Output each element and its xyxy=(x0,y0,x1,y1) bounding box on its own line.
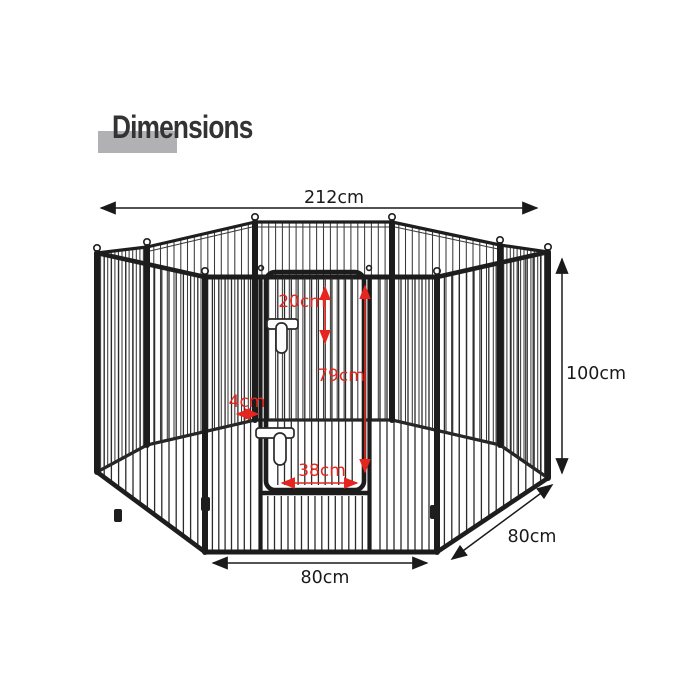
page-canvas: Dimensions xyxy=(0,0,700,700)
dim-overall-width: 212cm xyxy=(101,188,537,208)
panel-connector-far-left xyxy=(114,509,122,522)
dimension-label-door-gap: 4cm xyxy=(229,392,266,412)
dim-front-panel-width: 80cm xyxy=(213,563,427,588)
panel-connector-left xyxy=(201,497,210,511)
dimension-label-panel-height: 100cm xyxy=(566,364,626,384)
floor-frame xyxy=(97,420,548,552)
fence-panel-front-left xyxy=(97,253,205,552)
dim-door-gap: 4cm xyxy=(229,392,266,414)
front-panel-right-section xyxy=(380,279,429,550)
playpen-dimension-diagram: 212cm 100cm 80cm 80cm 20cm 79cm 4cm xyxy=(0,0,700,700)
dimension-label-overall-width: 212cm xyxy=(304,188,364,208)
dim-panel-height: 100cm xyxy=(562,259,626,473)
dimension-label-door-height: 79cm xyxy=(317,366,365,386)
front-panel-below-door-section xyxy=(268,496,363,550)
fence-panel-front xyxy=(205,272,437,552)
door-latch-upper xyxy=(267,319,298,353)
dimension-label-door-width: 38cm xyxy=(298,461,346,481)
dimension-label-front-panel-width: 80cm xyxy=(301,568,350,588)
panel-connector-right xyxy=(430,505,439,519)
dimension-label-side-panel-width: 80cm xyxy=(508,527,557,547)
dim-door-width: 38cm xyxy=(282,461,357,483)
dimension-label-door-top: 20cm xyxy=(278,292,326,312)
